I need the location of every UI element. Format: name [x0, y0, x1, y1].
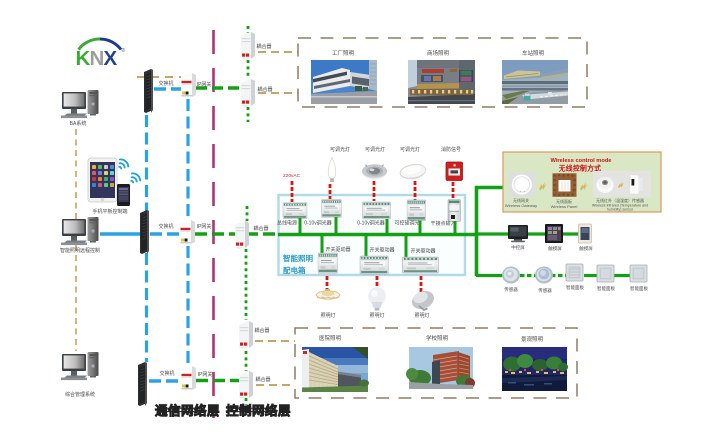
- svg-text:®: ®: [122, 47, 126, 54]
- svg-text:智能面板: 智能面板: [597, 285, 615, 292]
- svg-text:触摸屏: 触摸屏: [579, 245, 593, 252]
- svg-text:通信网络层: 通信网络层: [155, 403, 220, 418]
- svg-text:0-10v调光器: 0-10v调光器: [357, 220, 385, 227]
- svg-text:IP网关: IP网关: [197, 223, 212, 230]
- svg-text:智能照明: 智能照明: [283, 253, 313, 263]
- svg-text:开关驱动器: 开关驱动器: [325, 246, 350, 253]
- svg-text:IP网关: IP网关: [197, 81, 212, 88]
- svg-text:传感器: 传感器: [538, 287, 552, 294]
- svg-text:消防信号: 消防信号: [441, 146, 461, 153]
- svg-text:开关驱动器: 开关驱动器: [410, 248, 435, 255]
- svg-text:传感器: 传感器: [504, 286, 518, 293]
- svg-text:景观照明: 景观照明: [521, 336, 544, 343]
- svg-text:工厂照明: 工厂照明: [332, 50, 355, 57]
- svg-text:照明灯: 照明灯: [414, 312, 429, 319]
- svg-text:交换机: 交换机: [158, 223, 173, 230]
- svg-text:Wireless Gateway: Wireless Gateway: [505, 203, 537, 208]
- svg-text:触摸屏: 触摸屏: [548, 245, 562, 252]
- svg-text:耦合器: 耦合器: [255, 376, 270, 383]
- svg-text:照明灯: 照明灯: [320, 312, 335, 319]
- svg-text:中控屏: 中控屏: [511, 244, 525, 251]
- svg-text:0-10v调光器: 0-10v调光器: [304, 220, 332, 227]
- svg-text:总线电源: 总线电源: [277, 220, 297, 227]
- svg-text:配电箱: 配电箱: [283, 265, 306, 275]
- svg-text:Wireless Panel: Wireless Panel: [551, 204, 578, 209]
- svg-text:学校照明: 学校照明: [426, 334, 449, 342]
- svg-text:BA系统: BA系统: [70, 120, 87, 127]
- svg-text:humidity) sensor: humidity) sensor: [607, 208, 634, 212]
- svg-text:医院照明: 医院照明: [319, 334, 342, 342]
- svg-text:220vAC: 220vAC: [283, 173, 301, 179]
- svg-text:智能面板: 智能面板: [566, 284, 584, 291]
- svg-text:交换机: 交换机: [159, 370, 174, 377]
- svg-text:无线红外（温湿度）传感器: 无线红外（温湿度）传感器: [596, 197, 644, 203]
- svg-text:可调光灯: 可调光灯: [400, 146, 420, 153]
- svg-text:耦合器: 耦合器: [253, 225, 268, 232]
- svg-text:开关驱动器: 开关驱动器: [369, 247, 394, 254]
- svg-text:可调光灯: 可调光灯: [330, 146, 350, 153]
- svg-text:耦合器: 耦合器: [257, 86, 272, 93]
- svg-text:耦合器: 耦合器: [254, 327, 269, 334]
- svg-text:智能面板: 智能面板: [630, 285, 648, 292]
- svg-text:耦合器: 耦合器: [256, 43, 271, 50]
- svg-text:手机平板控制端: 手机平板控制端: [92, 208, 127, 215]
- svg-text:车站照明: 车站照明: [522, 49, 545, 57]
- svg-text:Wireless control mode: Wireless control mode: [551, 158, 612, 164]
- svg-text:商场照明: 商场照明: [427, 49, 450, 57]
- svg-text:综合管理系统: 综合管理系统: [65, 391, 95, 398]
- svg-text:KNX: KNX: [76, 47, 118, 70]
- svg-text:照明灯: 照明灯: [369, 312, 384, 319]
- svg-text:可控硅调光: 可控硅调光: [394, 220, 419, 227]
- svg-text:智能照明远程控制: 智能照明远程控制: [60, 247, 100, 254]
- svg-text:交换机: 交换机: [158, 80, 173, 87]
- svg-text:控制网络层: 控制网络层: [226, 403, 291, 418]
- svg-text:可调光灯: 可调光灯: [365, 146, 385, 153]
- svg-text:IP网关: IP网关: [198, 371, 213, 378]
- svg-text:干接点输入: 干接点输入: [430, 220, 455, 227]
